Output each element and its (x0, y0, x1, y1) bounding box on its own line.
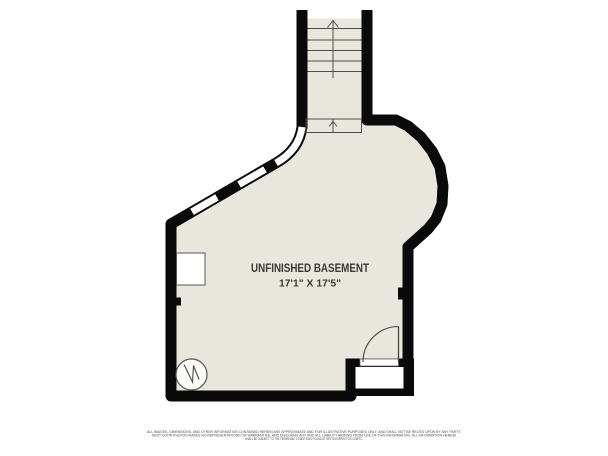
stairwell-top-opening (308, 8, 362, 19)
room-label: UNFINISHED BASEMENT (251, 263, 369, 275)
wall-stub-right (398, 288, 403, 300)
floorplan-canvas: UNFINISHED BASEMENT 17'1" X 17'5" ALL IM… (0, 0, 608, 456)
stoop-interior (356, 367, 404, 389)
disclaimer: ALL IMAGES, DIMENSIONS, AND OTHER INFORM… (147, 430, 461, 441)
wall-stub-left (177, 298, 182, 306)
utility-square (177, 253, 206, 285)
door-threshold (360, 359, 399, 366)
disclaimer-line-3: SHALL BE SUBJECT TO THE TERMS AND CONDIT… (245, 437, 363, 441)
floorplan-page: UNFINISHED BASEMENT 17'1" X 17'5" ALL IM… (0, 0, 608, 456)
room-dimensions: 17'1" X 17'5" (279, 278, 341, 290)
water-heater-circle (176, 359, 207, 390)
water-heater-icon (176, 359, 207, 390)
